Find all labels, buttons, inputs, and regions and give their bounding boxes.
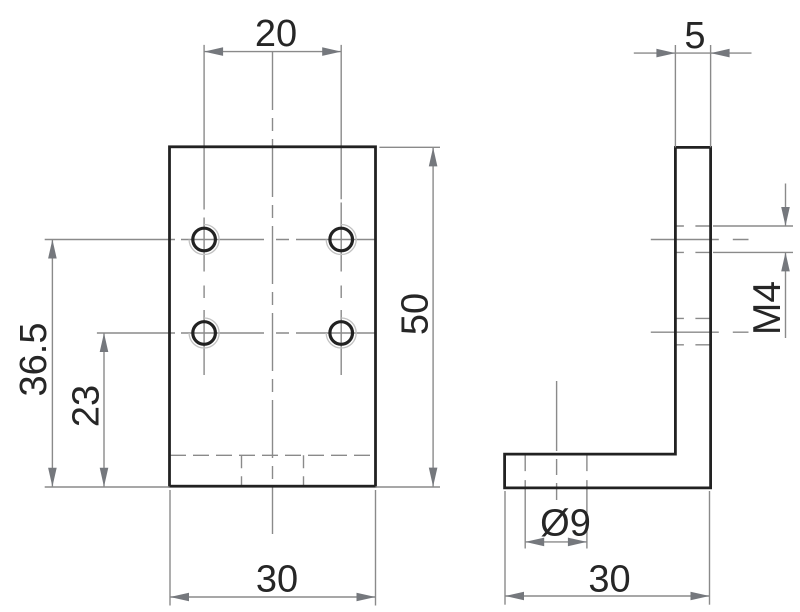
svg-text:5: 5 [684,15,705,57]
svg-text:M4: M4 [746,281,789,335]
svg-text:36.5: 36.5 [13,323,55,397]
svg-text:30: 30 [588,559,630,601]
svg-text:Ø9: Ø9 [540,503,591,545]
svg-text:50: 50 [395,293,437,335]
svg-text:20: 20 [255,13,297,55]
svg-text:30: 30 [256,559,298,601]
svg-text:23: 23 [66,385,108,427]
